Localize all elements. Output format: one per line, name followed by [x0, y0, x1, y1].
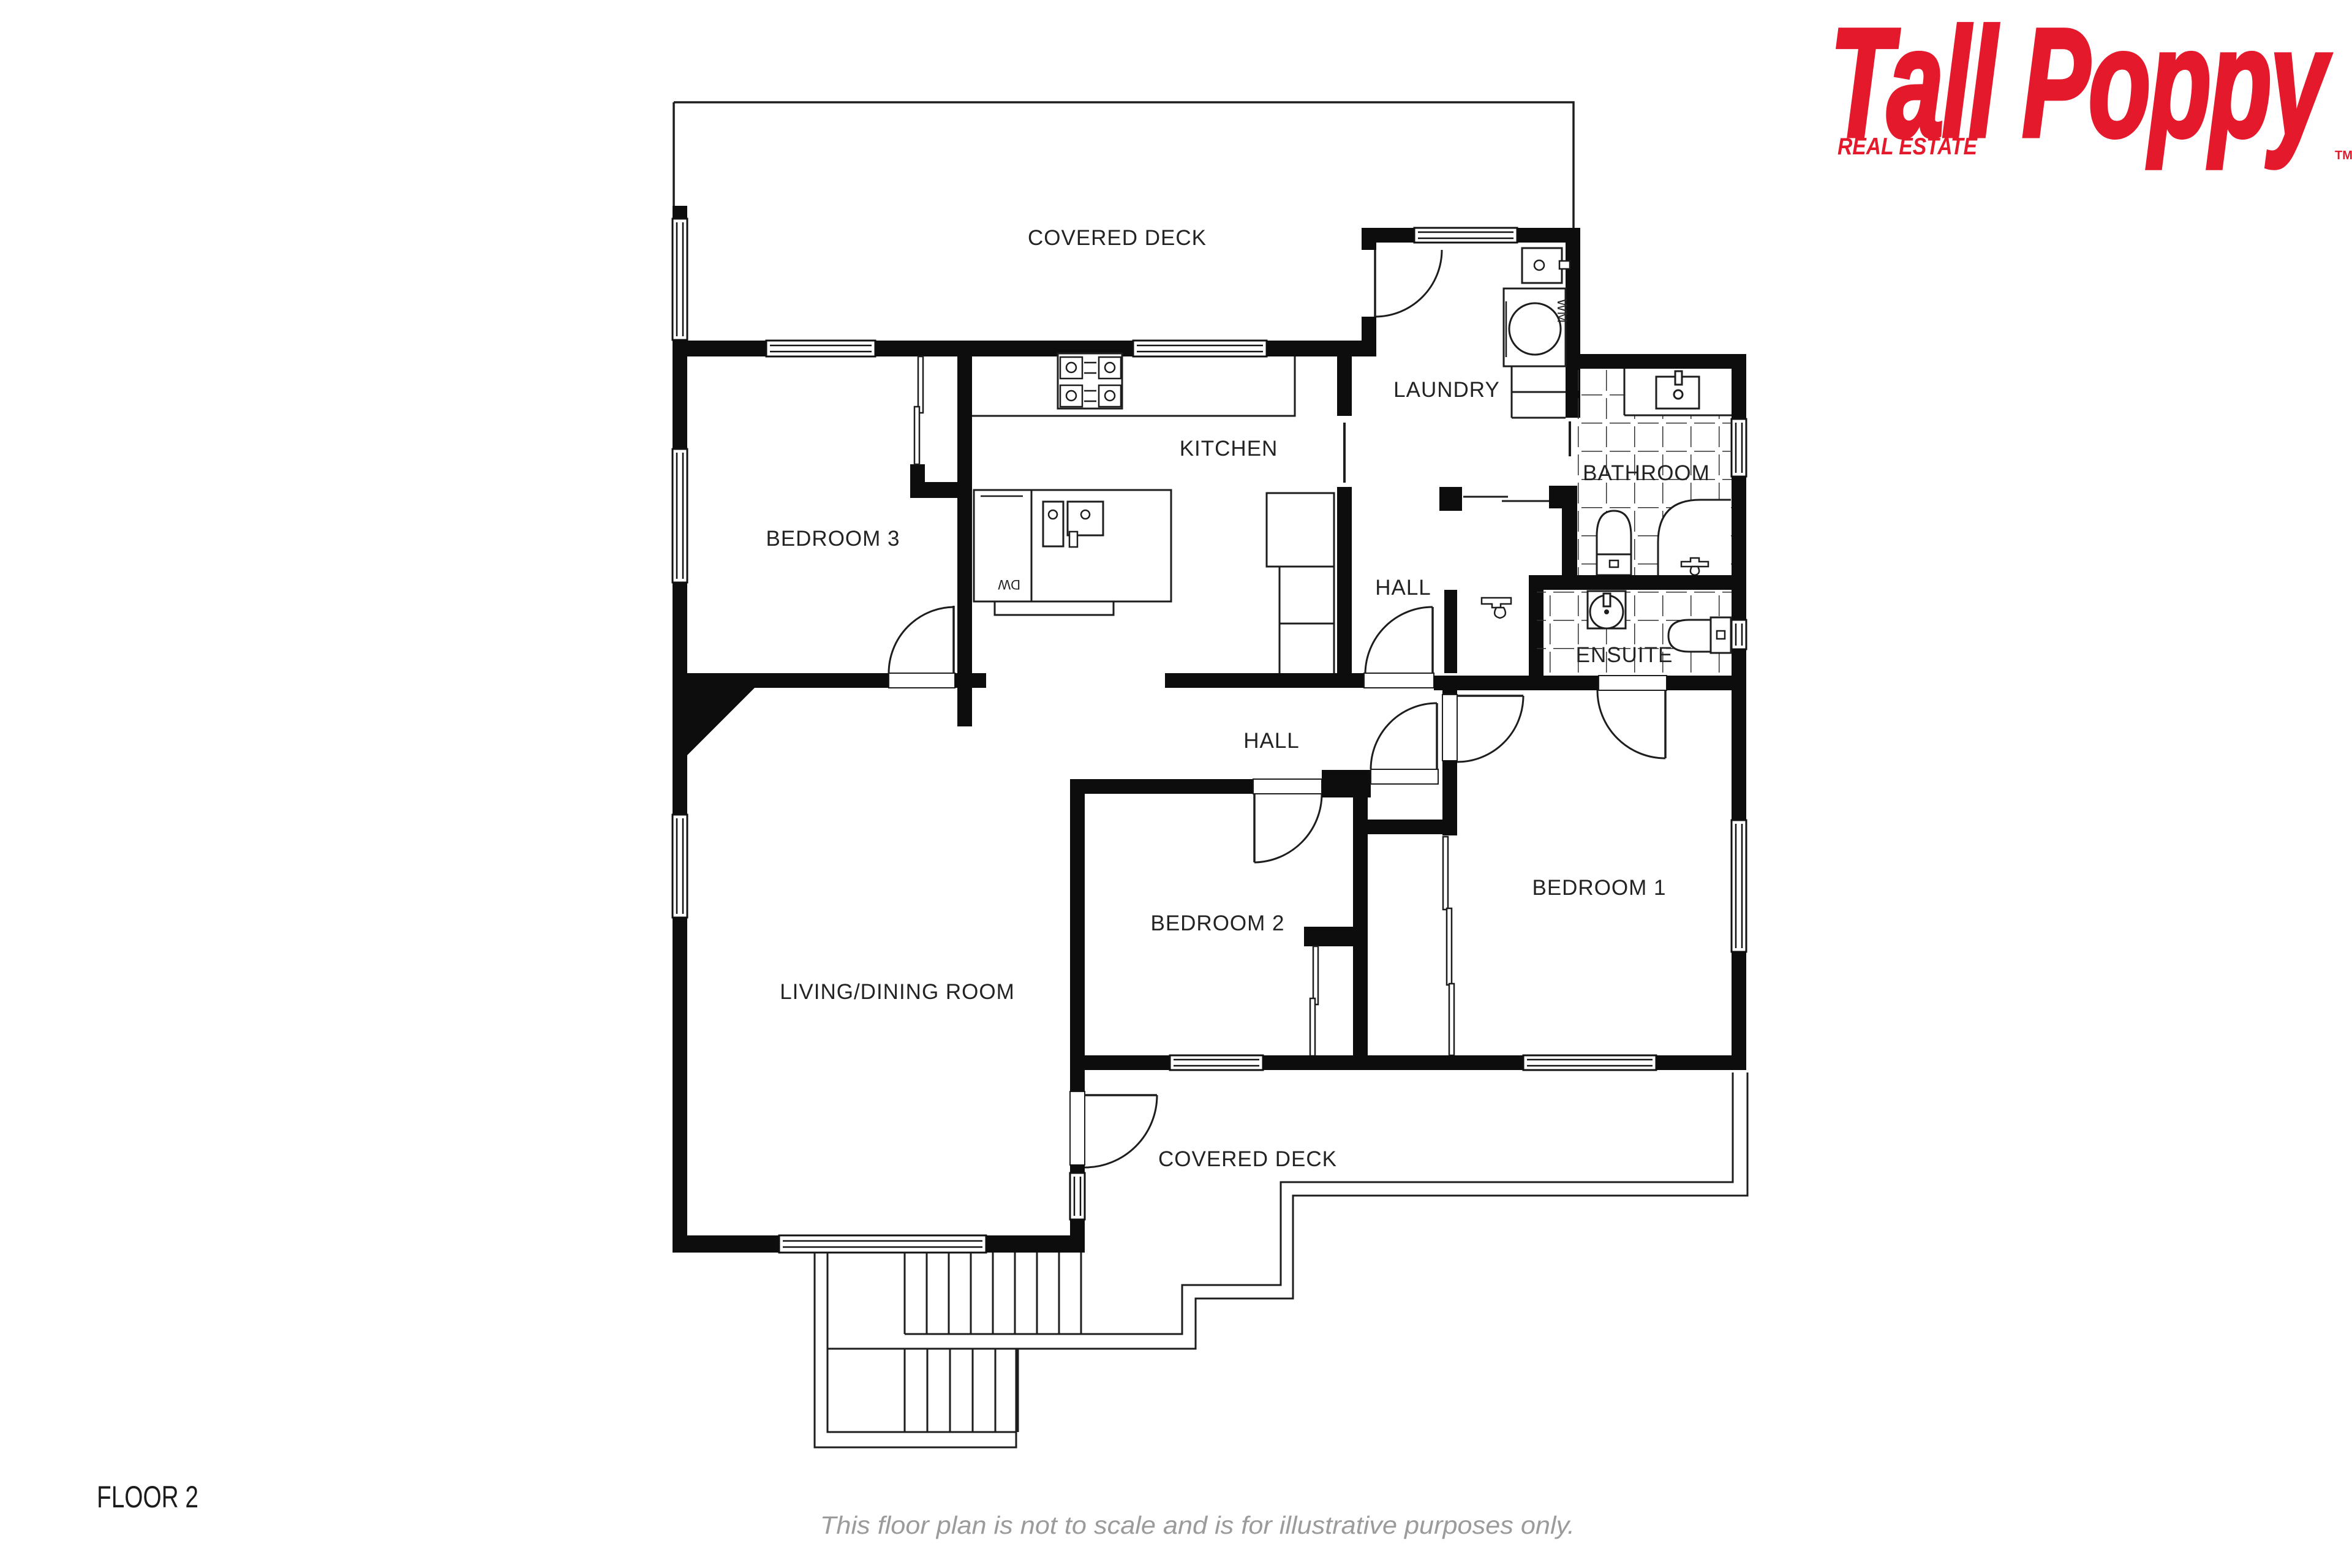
- svg-text:HALL: HALL: [1375, 576, 1431, 600]
- svg-text:LIVING/DINING ROOM: LIVING/DINING ROOM: [780, 980, 1015, 1004]
- svg-text:COVERED DECK: COVERED DECK: [1158, 1147, 1337, 1171]
- svg-text:WM: WM: [1555, 299, 1570, 323]
- svg-text:FLOOR 2: FLOOR 2: [97, 1480, 198, 1514]
- svg-text:BEDROOM 1: BEDROOM 1: [1532, 876, 1666, 900]
- svg-text:BEDROOM 3: BEDROOM 3: [766, 527, 900, 551]
- svg-text:COVERED DECK: COVERED DECK: [1028, 226, 1207, 250]
- svg-text:DW: DW: [998, 577, 1020, 592]
- svg-text:LAUNDRY: LAUNDRY: [1393, 378, 1500, 402]
- svg-text:REAL ESTATE: REAL ESTATE: [1838, 134, 1978, 160]
- svg-text:TM: TM: [2335, 149, 2352, 162]
- svg-text:ENSUITE: ENSUITE: [1576, 643, 1673, 667]
- svg-text:HALL: HALL: [1243, 729, 1300, 753]
- svg-text:BEDROOM 2: BEDROOM 2: [1150, 911, 1284, 935]
- svg-text:This floor plan is not to scal: This floor plan is not to scale and is f…: [820, 1511, 1575, 1539]
- svg-text:BATHROOM: BATHROOM: [1583, 461, 1710, 485]
- svg-text:KITCHEN: KITCHEN: [1180, 437, 1278, 461]
